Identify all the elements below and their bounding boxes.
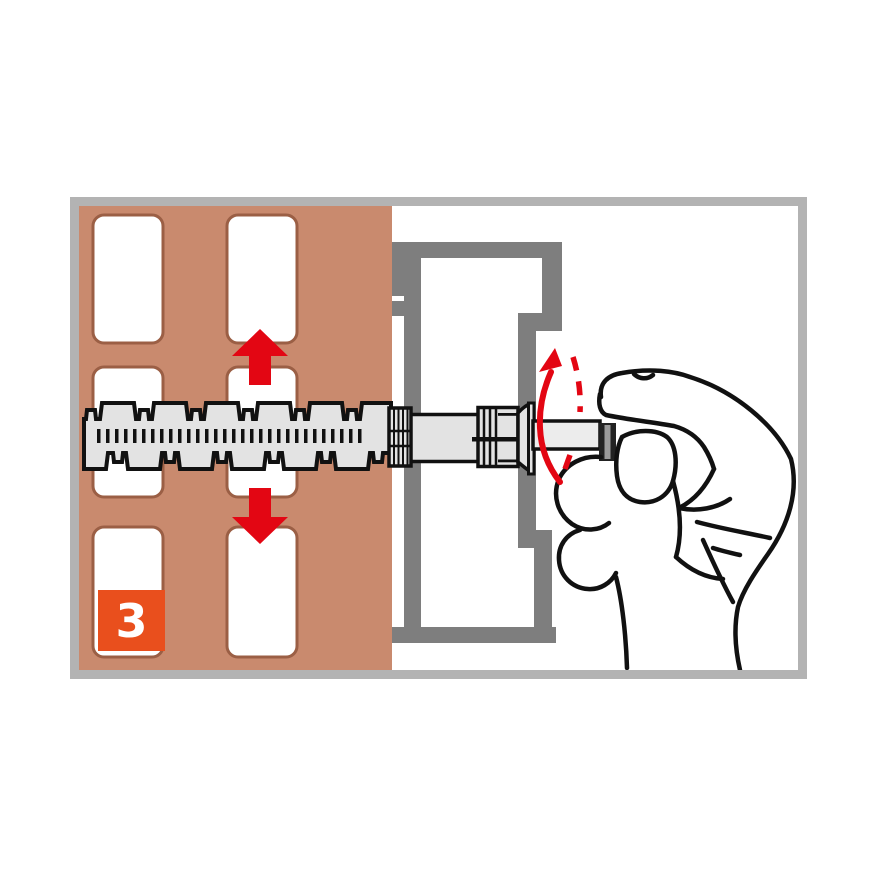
illustration-canvas bbox=[0, 0, 880, 880]
anchor-collar-2 bbox=[472, 408, 518, 467]
anchor-sleeve bbox=[408, 415, 480, 462]
anchor-collar-1 bbox=[388, 408, 412, 466]
hand-graphic bbox=[556, 370, 794, 670]
screw-anchor-graphic bbox=[84, 403, 600, 474]
anchor-serrated-body bbox=[84, 403, 391, 469]
index-fingertip bbox=[616, 431, 675, 502]
step-number: 3 bbox=[115, 598, 147, 644]
installation-illustration: 3 bbox=[0, 0, 880, 880]
step-number-badge: 3 bbox=[98, 590, 165, 651]
